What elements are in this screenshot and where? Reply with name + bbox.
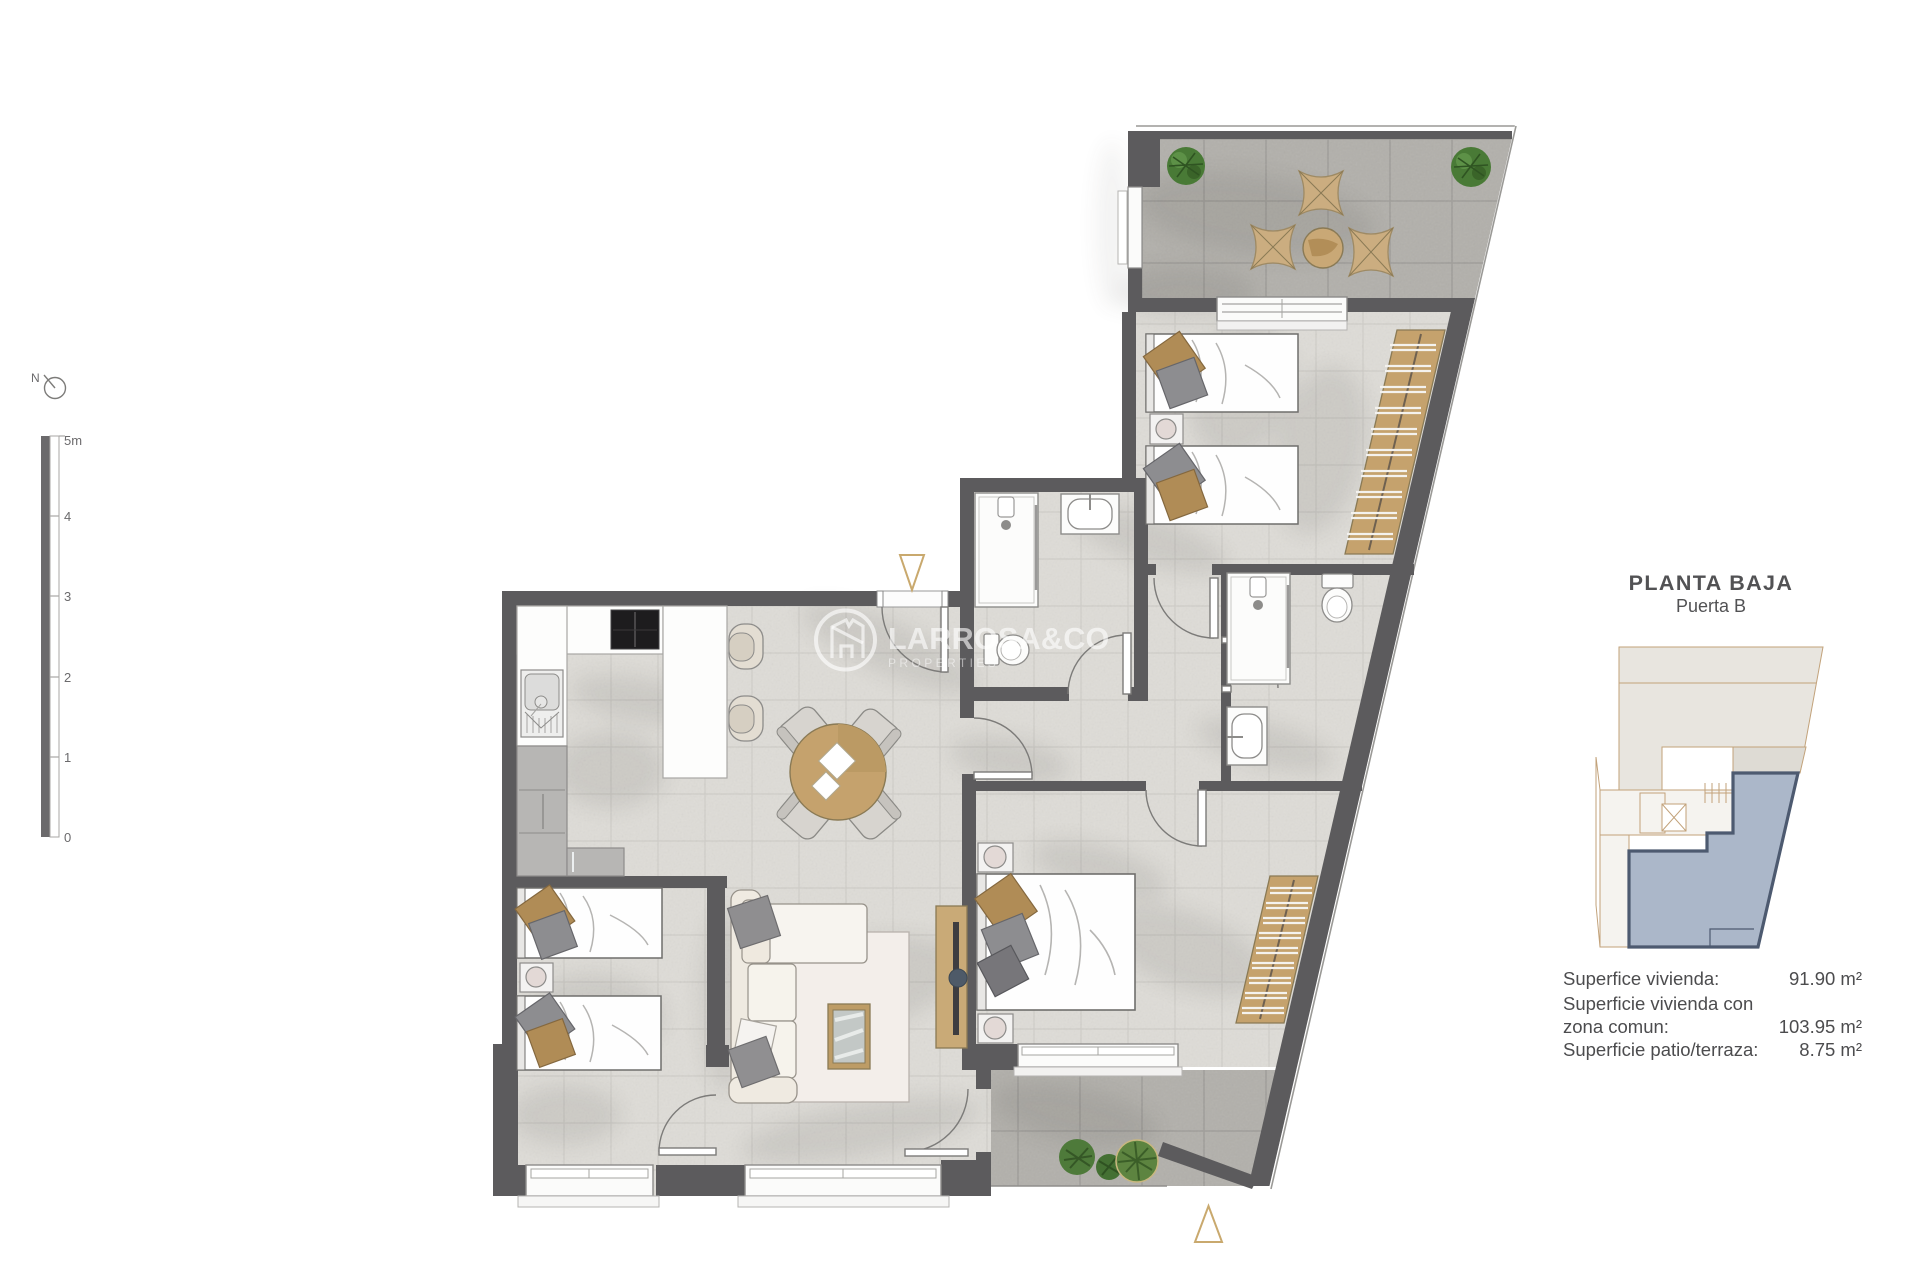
svg-text:91.90 m²: 91.90 m² — [1789, 968, 1862, 989]
svg-text:PROPERTIES: PROPERTIES — [888, 656, 999, 670]
svg-text:Superficie patio/terraza:: Superficie patio/terraza: — [1563, 1039, 1758, 1060]
svg-text:2: 2 — [64, 670, 71, 685]
svg-text:LARROSA&CO: LARROSA&CO — [888, 622, 1110, 656]
svg-text:3: 3 — [64, 589, 71, 604]
svg-text:Superfice vivienda:: Superfice vivienda: — [1563, 968, 1719, 989]
svg-text:zona comun:: zona comun: — [1563, 1016, 1669, 1037]
svg-text:4: 4 — [64, 509, 71, 524]
svg-text:103.95 m²: 103.95 m² — [1779, 1016, 1862, 1037]
svg-text:Superficie vivienda con: Superficie vivienda con — [1563, 993, 1753, 1014]
svg-text:N: N — [31, 371, 40, 385]
svg-text:5m: 5m — [64, 433, 82, 448]
svg-text:0: 0 — [64, 830, 71, 845]
svg-text:PLANTA BAJA: PLANTA BAJA — [1629, 571, 1794, 595]
svg-text:1: 1 — [64, 750, 71, 765]
svg-text:Puerta B: Puerta B — [1676, 596, 1746, 616]
svg-text:8.75 m²: 8.75 m² — [1799, 1039, 1862, 1060]
